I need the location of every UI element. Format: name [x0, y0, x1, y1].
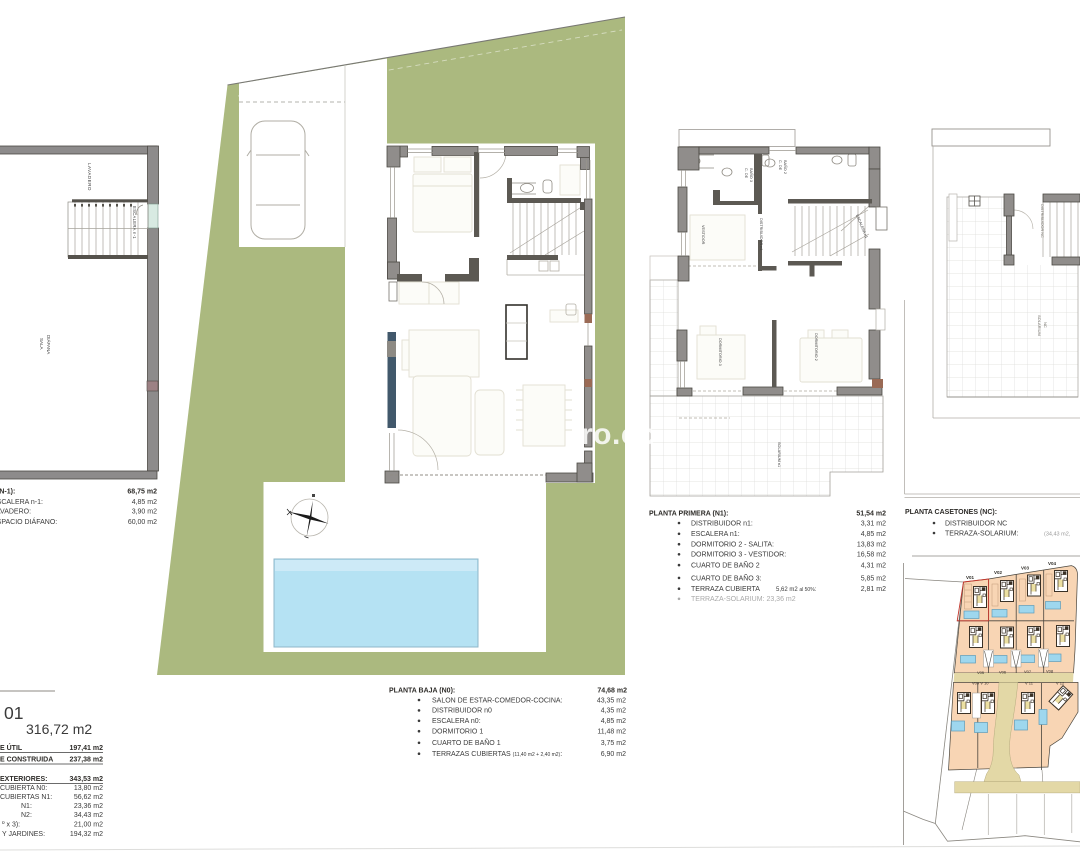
svg-text:16,58 m2: 16,58 m2	[857, 552, 886, 559]
svg-text:316,72 m2: 316,72 m2	[26, 721, 92, 737]
svg-text:VESTIDOR: VESTIDOR	[701, 225, 705, 245]
svg-text:13,83 m2: 13,83 m2	[857, 542, 886, 549]
svg-text:DISTRIBUIDOR n1:: DISTRIBUIDOR n1:	[691, 520, 753, 527]
svg-text:34,43 m2: 34,43 m2	[74, 812, 103, 819]
svg-text:PLANTA PRIMERA (N1):: PLANTA PRIMERA (N1):	[649, 511, 728, 518]
svg-text:51,54 m2: 51,54 m2	[856, 511, 886, 518]
svg-text:Y JARDINES:: Y JARDINES:	[2, 831, 45, 838]
svg-text:DISTRIBUIDOR n0: DISTRIBUIDOR n0	[432, 708, 492, 715]
svg-text:ESCALERA n1:: ESCALERA n1:	[691, 531, 740, 538]
svg-text:74,68 m2: 74,68 m2	[597, 688, 627, 695]
svg-text:3,75 m2: 3,75 m2	[601, 740, 626, 747]
svg-text:68,75 m2: 68,75 m2	[127, 489, 157, 496]
svg-text:V07: V07	[1024, 669, 1032, 674]
svg-text:DIÁFANA: DIÁFANA	[46, 335, 52, 354]
svg-text:V 12: V 12	[1056, 681, 1065, 686]
svg-text:CUARTO DE BAÑO 1: CUARTO DE BAÑO 1	[432, 738, 501, 747]
svg-text:DORMITORIO 3: DORMITORIO 3	[718, 338, 722, 366]
svg-text:194,32 m2: 194,32 m2	[70, 831, 103, 838]
svg-text:11,48 m2: 11,48 m2	[597, 729, 626, 736]
svg-text:4,85 m2: 4,85 m2	[601, 718, 626, 725]
svg-text:SALON DE ESTAR-COMEDOR-COCINA:: SALON DE ESTAR-COMEDOR-COCINA:	[432, 697, 563, 704]
svg-text:BAÑO 2: BAÑO 2	[783, 160, 788, 174]
svg-text:V01: V01	[966, 575, 975, 580]
svg-text:V05: V05	[977, 670, 985, 675]
svg-text:DISTRIBUIDOR n1: DISTRIBUIDOR n1	[759, 218, 763, 251]
svg-text:2,81 m2: 2,81 m2	[861, 586, 886, 593]
svg-text:PLANTA BAJA (N0):: PLANTA BAJA (N0):	[389, 688, 455, 695]
svg-text:ESCALERA n-1: ESCALERA n-1	[132, 206, 137, 239]
svg-text:5,62 m2 al 50%:: 5,62 m2 al 50%:	[776, 587, 817, 593]
svg-text:N2:: N2:	[21, 812, 32, 819]
svg-text:01: 01	[4, 703, 23, 723]
svg-text:V09 V 10: V09 V 10	[972, 681, 989, 686]
svg-text:DORMITORIO 3 - VESTIDOR:: DORMITORIO 3 - VESTIDOR:	[691, 552, 786, 559]
svg-text:DISTRIBUIDOR NC: DISTRIBUIDOR NC	[1040, 204, 1044, 238]
svg-text:C. DE: C. DE	[744, 168, 748, 179]
svg-text:V04: V04	[1048, 561, 1057, 566]
svg-text:N1:: N1:	[21, 803, 32, 810]
svg-text:60,00 m2: 60,00 m2	[128, 519, 157, 526]
svg-text:LAVADERO:: LAVADERO:	[0, 509, 31, 516]
svg-text:EXTERIORES:: EXTERIORES:	[0, 776, 47, 783]
svg-text:NC: NC	[1043, 322, 1048, 328]
svg-text:3,31 m2: 3,31 m2	[861, 520, 886, 527]
svg-text:CUARTO DE BAÑO 2: CUARTO DE BAÑO 2	[691, 561, 760, 570]
svg-text:PLANTA CASETONES (NC):: PLANTA CASETONES (NC):	[905, 509, 997, 516]
svg-text:E ÚTIL: E ÚTIL	[0, 743, 23, 752]
svg-text:V03: V03	[1021, 566, 1030, 571]
svg-text:4,85 m2: 4,85 m2	[861, 531, 886, 538]
svg-text:DORMITORIO 1: DORMITORIO 1	[432, 729, 483, 736]
svg-text:TERRAZA-SOLARIUM: 23,36 m2: TERRAZA-SOLARIUM: 23,36 m2	[691, 596, 796, 603]
svg-text:4,85 m2: 4,85 m2	[132, 499, 157, 506]
svg-text:ESPACIO DIÁFANO:: ESPACIO DIÁFANO:	[0, 517, 57, 526]
svg-text:ESCALERA n1: ESCALERA n1	[855, 214, 868, 239]
svg-text:CUBIERTAS N1:: CUBIERTAS N1:	[0, 794, 52, 801]
svg-text:ro.co: ro.co	[581, 418, 657, 451]
svg-text:SOLARIUM n1: SOLARIUM n1	[777, 442, 781, 467]
svg-text:LAVADERO: LAVADERO	[87, 163, 92, 191]
svg-text:SALA: SALA	[39, 338, 44, 350]
svg-text:(N-1):: (N-1):	[0, 489, 15, 496]
svg-text:5,85 m2: 5,85 m2	[861, 575, 886, 582]
svg-text:23,36 m2: 23,36 m2	[74, 803, 103, 810]
svg-text:DORMITORIO 2: DORMITORIO 2	[814, 333, 818, 361]
svg-text:V08: V08	[1046, 669, 1054, 674]
svg-text:TERRAZA-SOLARIUM:: TERRAZA-SOLARIUM:	[945, 530, 1019, 537]
svg-text:343,53 m2: 343,53 m2	[70, 776, 104, 783]
svg-text:E CONSTRUIDA: E CONSTRUIDA	[0, 757, 53, 764]
svg-text:V 11: V 11	[1025, 681, 1034, 686]
svg-text:BAÑO 3: BAÑO 3	[749, 168, 754, 182]
svg-text:DORMITORIO 2 - SALITA:: DORMITORIO 2 - SALITA:	[691, 542, 774, 549]
svg-text:TERRAZAS CUBIERTAS (11,40 m2 +: TERRAZAS CUBIERTAS (11,40 m2 + 2,40 m2):	[432, 751, 562, 758]
svg-text:ESCALERA n-1:: ESCALERA n-1:	[0, 499, 43, 506]
svg-text:197,41 m2: 197,41 m2	[70, 745, 104, 752]
svg-text:V06: V06	[999, 670, 1007, 675]
svg-text:TERRAZA CUBIERTA: TERRAZA CUBIERTA	[691, 586, 760, 593]
svg-text:C. DE: C. DE	[778, 160, 782, 171]
svg-text:(34,43 m2,: (34,43 m2,	[1044, 531, 1071, 537]
svg-text:SOLARIUM: SOLARIUM	[1037, 315, 1042, 336]
svg-text:4,31 m2: 4,31 m2	[861, 563, 886, 570]
svg-text:3,90 m2: 3,90 m2	[132, 509, 157, 516]
svg-text:4,35 m2: 4,35 m2	[601, 708, 626, 715]
svg-text:13,80 m2: 13,80 m2	[74, 785, 103, 792]
svg-text:21,00 m2: 21,00 m2	[74, 822, 103, 829]
svg-text:237,38 m2: 237,38 m2	[70, 757, 104, 764]
svg-text:43,35 m2: 43,35 m2	[597, 697, 626, 704]
svg-text:56,62 m2: 56,62 m2	[74, 794, 103, 801]
svg-text:CUBIERTA N0:: CUBIERTA N0:	[0, 785, 47, 792]
svg-text:CUARTO DE BAÑO 3:: CUARTO DE BAÑO 3:	[691, 573, 762, 582]
svg-text:V02: V02	[994, 570, 1003, 575]
svg-text:6,90 m2: 6,90 m2	[601, 751, 626, 758]
svg-text:ESCALERA n0:: ESCALERA n0:	[432, 718, 481, 725]
svg-text:º x 3):: º x 3):	[2, 822, 20, 829]
svg-text:DISTRIBUIDOR NC: DISTRIBUIDOR NC	[945, 520, 1007, 527]
